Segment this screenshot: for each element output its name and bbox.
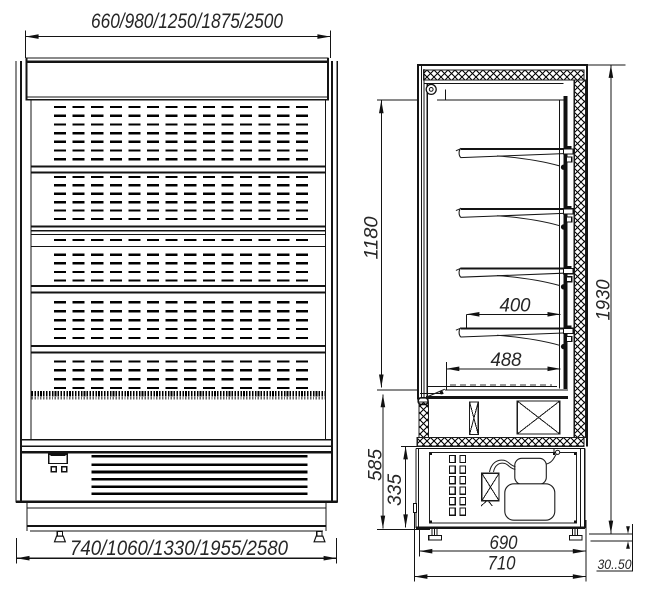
svg-text:690: 690 bbox=[490, 533, 518, 554]
svg-text:740/1060/1330/1955/2580: 740/1060/1330/1955/2580 bbox=[70, 537, 288, 560]
svg-text:400: 400 bbox=[500, 296, 531, 317]
svg-text:488: 488 bbox=[491, 350, 522, 371]
svg-text:710: 710 bbox=[488, 554, 516, 575]
svg-text:585: 585 bbox=[366, 449, 387, 481]
svg-text:660/980/1250/1875/2500: 660/980/1250/1875/2500 bbox=[91, 10, 283, 33]
svg-text:335: 335 bbox=[385, 474, 406, 506]
svg-text:30..50: 30..50 bbox=[598, 557, 632, 572]
svg-text:1180: 1180 bbox=[361, 216, 382, 259]
